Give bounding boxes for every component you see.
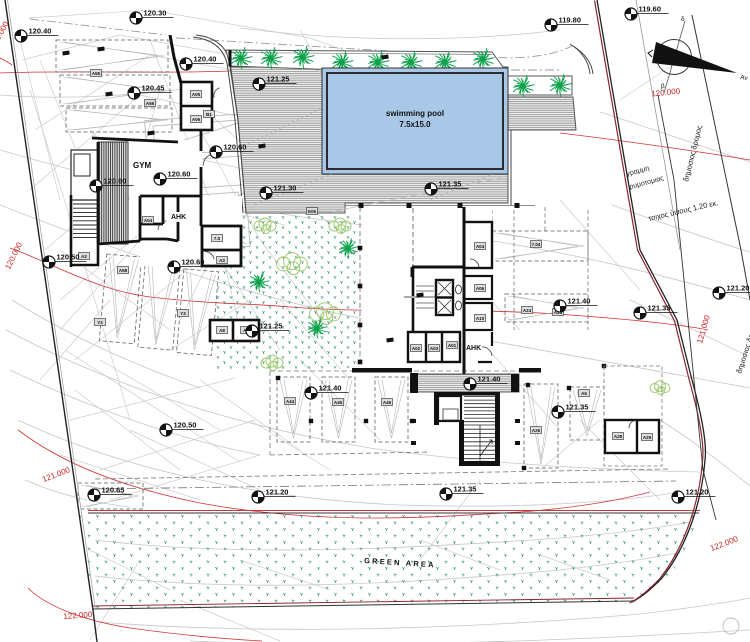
svg-text:120.50: 120.50: [57, 253, 80, 262]
svg-text:swimming pool: swimming pool: [386, 109, 444, 118]
svg-text:119.80: 119.80: [559, 16, 582, 25]
svg-text:120.60: 120.60: [168, 170, 191, 179]
svg-text:AHK: AHK: [466, 345, 481, 352]
svg-text:7.5x15.0: 7.5x15.0: [399, 120, 431, 129]
svg-text:A04: A04: [144, 218, 153, 223]
svg-text:121.30: 121.30: [274, 184, 297, 193]
svg-text:B1: B1: [206, 112, 212, 117]
svg-text:A58: A58: [119, 268, 128, 273]
svg-text:121.40: 121.40: [478, 375, 501, 384]
svg-text:121.35: 121.35: [566, 403, 589, 412]
svg-text:A06: A06: [476, 286, 485, 291]
svg-text:A24: A24: [523, 308, 532, 313]
svg-text:120.50: 120.50: [174, 421, 197, 430]
svg-text:δ: δ: [681, 16, 685, 23]
svg-text:120.60: 120.60: [104, 177, 127, 186]
svg-text:A46: A46: [383, 400, 392, 405]
svg-text:A2: A2: [81, 254, 87, 259]
svg-text:121.25: 121.25: [260, 322, 283, 331]
svg-text:E05: E05: [308, 209, 317, 214]
svg-text:7.0: 7.0: [214, 236, 221, 241]
svg-text:A56: A56: [146, 101, 155, 106]
svg-text:121.20: 121.20: [686, 488, 709, 497]
svg-text:A01: A01: [448, 343, 457, 348]
svg-text:A44: A44: [286, 399, 295, 404]
svg-text:A55: A55: [92, 71, 101, 76]
svg-text:Y3: Y3: [180, 311, 186, 316]
svg-text:β: β: [661, 83, 665, 90]
svg-text:120.40: 120.40: [29, 27, 52, 36]
svg-text:121.35: 121.35: [648, 304, 671, 313]
svg-text:GYM: GYM: [133, 161, 152, 170]
svg-text:120.60: 120.60: [224, 143, 247, 152]
svg-text:A26: A26: [532, 428, 541, 433]
svg-text:A05: A05: [192, 92, 201, 97]
svg-text:120.65: 120.65: [102, 486, 125, 495]
svg-text:A3: A3: [219, 258, 225, 263]
svg-text:120.60: 120.60: [182, 258, 205, 267]
svg-text:A02: A02: [412, 346, 421, 351]
svg-text:120.45: 120.45: [142, 84, 165, 93]
svg-text:121.25: 121.25: [267, 75, 290, 84]
svg-text:A45: A45: [334, 400, 343, 405]
svg-text:121.20: 121.20: [266, 488, 289, 497]
svg-text:A06: A06: [192, 117, 201, 122]
svg-text:A29: A29: [643, 435, 652, 440]
svg-text:121.40: 121.40: [568, 297, 591, 306]
svg-text:120.40: 120.40: [194, 55, 217, 64]
svg-text:A03: A03: [430, 346, 439, 351]
svg-text:119.60: 119.60: [639, 5, 662, 14]
svg-text:Αν: Αν: [740, 74, 748, 82]
svg-text:A28: A28: [614, 434, 623, 439]
svg-text:A8: A8: [219, 328, 225, 333]
svg-text:120.30: 120.30: [144, 9, 167, 18]
svg-text:121.35: 121.35: [439, 180, 462, 189]
svg-text:A10: A10: [476, 316, 485, 321]
svg-text:121.40: 121.40: [319, 384, 342, 393]
svg-text:Y2: Y2: [97, 320, 103, 325]
svg-text:A04: A04: [476, 244, 485, 249]
svg-text:121.20: 121.20: [727, 284, 750, 293]
svg-text:7.04: 7.04: [532, 242, 541, 247]
svg-text:121.35: 121.35: [454, 485, 477, 494]
svg-text:AHK: AHK: [171, 214, 186, 221]
svg-text:A6: A6: [581, 391, 587, 396]
